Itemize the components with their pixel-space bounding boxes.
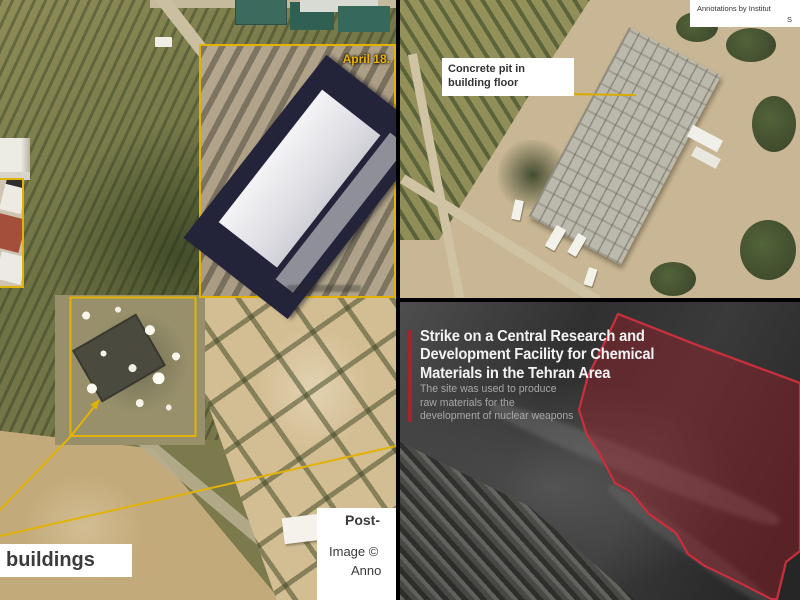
white-roof (0, 184, 24, 215)
annotations-credit-line1: Annotations by Institut (697, 3, 800, 14)
caption-box: Post- Image © Anno (317, 508, 396, 600)
inset-closeup-image: April 18. (199, 44, 396, 298)
inset-building (184, 55, 396, 319)
white-truck (155, 37, 172, 47)
inset-date-label: April 18. (343, 52, 390, 66)
top-right-satellite-panel: Concrete pit in building floor Annotatio… (400, 0, 800, 298)
strike-title-line3: Materials in the Tehran Area (420, 365, 715, 383)
tree-blob (650, 262, 696, 296)
strike-title-block: Strike on a Central Research and Develop… (420, 328, 715, 424)
green-roof-building (338, 6, 390, 32)
caption-post-strike: Post- (345, 512, 396, 528)
strike-subtitle-line3: development of nuclear weapons (420, 410, 715, 424)
strike-title-line1: Strike on a Central Research and (420, 328, 715, 346)
satellite-graphic-composite: April 18. buildings Post- Image © Anno (0, 0, 800, 600)
concrete-pit-callout: Concrete pit in building floor (442, 58, 574, 96)
tree-blob (740, 220, 796, 280)
annotations-credit-line2: S (697, 14, 800, 25)
bottom-right-strike-graphic-panel: Strike on a Central Research and Develop… (400, 302, 800, 600)
storage-container (687, 125, 723, 152)
red-roof-building (0, 213, 24, 253)
annotations-credit-box: Annotations by Institut S (690, 0, 800, 27)
left-edge-buildings (0, 138, 30, 180)
strike-subtitle-line1: The site was used to produce (420, 383, 715, 397)
left-satellite-panel: April 18. buildings Post- Image © Anno (0, 0, 396, 600)
title-accent-bar (408, 330, 412, 422)
white-truck (583, 267, 597, 287)
caption-annotations: Anno (351, 563, 396, 578)
tree-blob (726, 28, 776, 62)
debris-speckles (60, 298, 205, 444)
tree-blob (752, 96, 796, 152)
white-roof (0, 251, 24, 284)
white-truck (545, 225, 567, 251)
green-roof-building (236, 0, 286, 24)
strike-title-line2: Development Facility for Chemical (420, 346, 715, 364)
strike-subtitle-line2: raw materials for the (420, 397, 715, 411)
destroyed-buildings-label: buildings (0, 544, 132, 577)
left-edge-highlight-box (0, 178, 24, 288)
image-credit-watermark (287, 285, 361, 292)
caption-image-credit: Image © (329, 544, 396, 559)
